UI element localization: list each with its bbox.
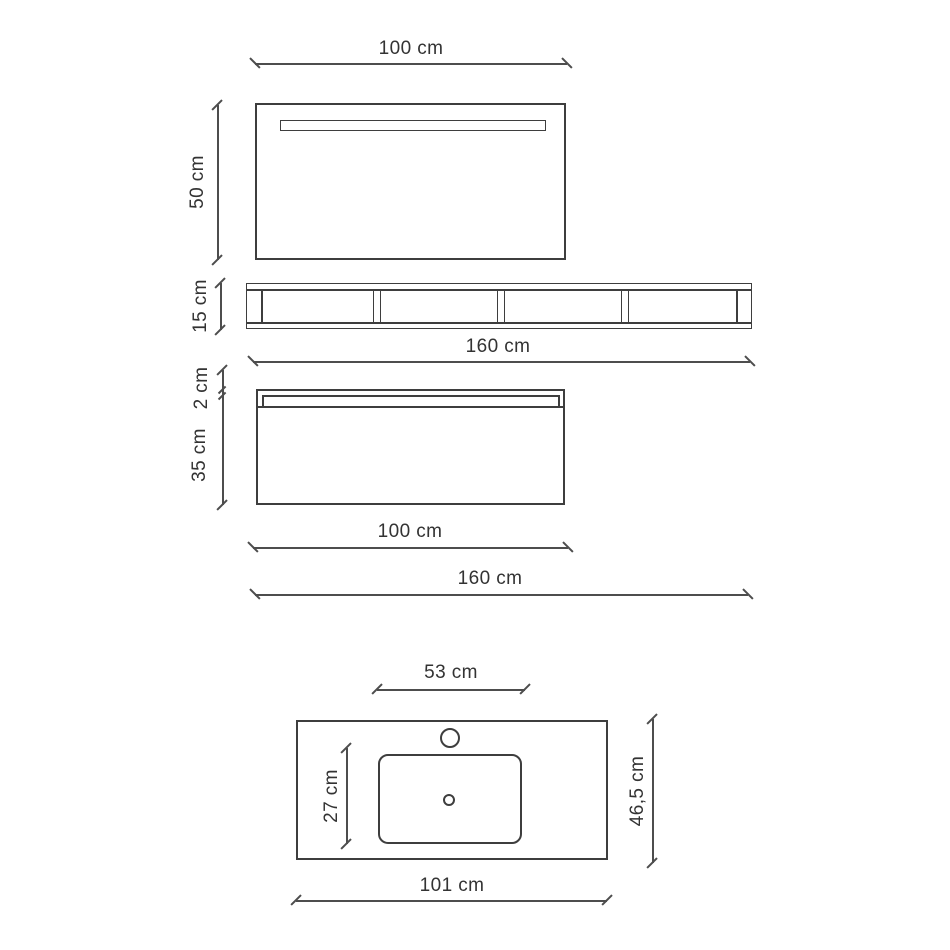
mirror-height-dim-label: 50 cm xyxy=(187,155,209,209)
mirror-height-dim-line xyxy=(217,105,219,260)
composition-width-dim-label: 160 cm xyxy=(458,568,523,590)
countertop-depth-dim-label: 46,5 cm xyxy=(627,756,649,826)
cabinet-handle-groove-line xyxy=(262,395,559,397)
basin-depth-dim-line xyxy=(346,748,348,844)
shelf-left-panel-line xyxy=(261,289,263,322)
shelf-divider xyxy=(497,289,505,322)
basin-width-dim-line xyxy=(377,689,525,691)
cabinet-top-seam-line xyxy=(256,406,565,408)
countertop-width-dim-label: 101 cm xyxy=(420,875,485,897)
mirror-led-strip xyxy=(280,120,546,131)
countertop-depth-dim-line xyxy=(652,719,654,863)
cabinet-top-thickness-dim-label: 2 cm xyxy=(191,367,213,410)
cabinet-width-dim-label: 100 cm xyxy=(378,521,443,543)
shelf-bottom-rail-line xyxy=(246,322,752,324)
basin-width-dim-label: 53 cm xyxy=(424,662,478,684)
technical-drawing-canvas: 100 cm 50 cm 15 cm 160 cm xyxy=(0,0,950,950)
cabinet-groove-end-right xyxy=(558,395,560,406)
shelf-divider xyxy=(621,289,629,322)
mirror-width-dim-label: 100 cm xyxy=(379,38,444,60)
shelf-right-panel-line xyxy=(736,289,738,322)
mirror-width-dim-line xyxy=(255,63,567,65)
cabinet-width-dim-line xyxy=(253,547,568,549)
countertop-width-dim-line xyxy=(296,900,607,902)
shelf-width-dim-line xyxy=(253,361,750,363)
composition-width-dim-line xyxy=(255,594,748,596)
cabinet-height-dim-label: 35 cm xyxy=(189,428,211,482)
drain-hole xyxy=(443,794,455,806)
faucet-hole xyxy=(440,728,460,748)
shelf-height-dim-line xyxy=(220,283,222,330)
shelf-divider xyxy=(373,289,381,322)
shelf-height-dim-label: 15 cm xyxy=(190,279,212,333)
basin-depth-dim-label: 27 cm xyxy=(321,769,343,823)
shelf-width-dim-label: 160 cm xyxy=(466,336,531,358)
cabinet-groove-end-left xyxy=(262,395,264,406)
